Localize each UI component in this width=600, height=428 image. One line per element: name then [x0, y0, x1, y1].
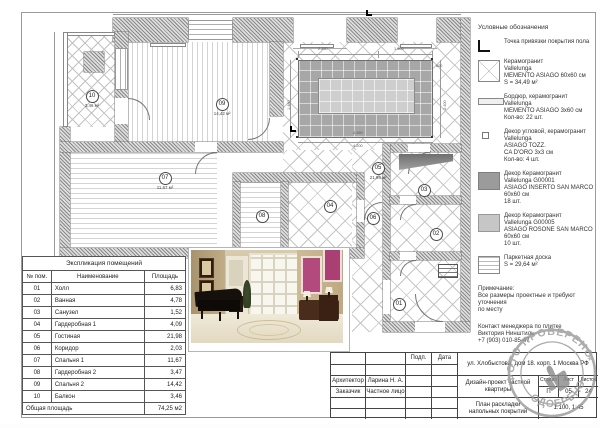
- interior-photo-inset: [188, 247, 350, 352]
- legend-swatch-icon: [478, 214, 500, 232]
- radiator: [150, 43, 186, 47]
- dimension-label: 2.250: [318, 47, 328, 51]
- dimension-label: 1.500: [394, 47, 404, 51]
- dimension-label: 4.200: [353, 144, 363, 148]
- room-name-cell: Ванная: [51, 295, 144, 307]
- photo-lamp-base: [306, 296, 308, 301]
- table-row: 05 Гостиная 21,98: [23, 331, 186, 343]
- legend-icon-cell: [478, 129, 504, 164]
- legend: Условные обозначения Точка привязки покр…: [478, 24, 595, 345]
- wall-segment: [60, 142, 283, 152]
- table-row: 03 Санузел 1,52: [23, 307, 186, 319]
- room-area-cell: 14,42: [144, 379, 185, 391]
- room-name-cell: Спальня 2: [51, 379, 144, 391]
- col-header-name: Наименование: [51, 271, 144, 283]
- legend-title: Условные обозначения: [478, 24, 595, 31]
- podp-header: Подп.: [405, 353, 431, 364]
- door-opening: [400, 196, 416, 204]
- entrance-opening: [415, 322, 445, 332]
- dimension-label: 600: [436, 64, 442, 68]
- room-area-label: 11,67 м²: [157, 185, 174, 190]
- room-num-cell: 01: [23, 283, 52, 295]
- room-number: 07: [159, 172, 172, 185]
- room-bubble: 03: [409, 178, 439, 197]
- photo-lamp-base: [328, 292, 330, 297]
- stage-label: Стадия: [538, 375, 558, 386]
- room-number: 04: [324, 200, 337, 213]
- room-bubble: 08: [247, 204, 277, 223]
- room-bubble: 07 11,67 м²: [150, 166, 180, 194]
- room-bubble: 02: [421, 222, 451, 241]
- window: [188, 20, 233, 40]
- radiator: [300, 44, 334, 48]
- col-header-area: Площадь: [144, 271, 185, 283]
- legend-item: Точка привязки покрытия пола: [478, 39, 595, 52]
- room-name-cell: Гостиная: [51, 331, 144, 343]
- corner-decor-dot: [431, 136, 433, 138]
- photo-magenta-panel: [323, 250, 342, 282]
- photo-plant: [243, 280, 251, 308]
- client-label: Заказчик: [331, 386, 365, 397]
- legend-icon-cell: [478, 94, 504, 122]
- room-number: 06: [367, 212, 380, 225]
- legend-swatch-icon: [478, 98, 504, 105]
- legend-item: Бордюр, керамогранит Vallelunga MEMENTO …: [478, 94, 595, 122]
- address-cell: ул. Хлобыстова, дом 18. корп. 1 Москва Р…: [457, 353, 598, 375]
- radiator: [400, 44, 432, 48]
- sheet-value: 05: [558, 386, 578, 397]
- wall-segment: [233, 18, 293, 42]
- room-name-cell: Балкон: [51, 391, 144, 403]
- room-num-cell: 05: [23, 331, 52, 343]
- room-area-label: 14,42 м²: [214, 111, 231, 116]
- photo-picture-frame: [199, 258, 214, 278]
- corner-decor-dot: [296, 136, 298, 138]
- room-10-balcony-floor: [68, 32, 115, 127]
- sheet-title-cell: План раскладки напольных покрытий: [457, 397, 538, 419]
- dimension-line: [54, 32, 55, 258]
- architect-name: Ларина Н. А.: [365, 375, 405, 386]
- table-row: 01 Холл 6,83: [23, 283, 186, 295]
- table-row: 08 Гардеробная 2 3,47: [23, 367, 186, 379]
- room-name-cell: Гардеробная 1: [51, 319, 144, 331]
- legend-item: Паркетная доска S = 29,64 м²: [478, 255, 595, 274]
- room-area-cell: 11,67: [144, 355, 185, 367]
- floor-anchor-point-icon: [366, 10, 372, 16]
- dimension-line: [440, 60, 441, 138]
- room-area-label: 3,46 м²: [84, 103, 101, 108]
- dimension-tick: [298, 51, 299, 58]
- dimension-label: 2.400: [443, 100, 447, 110]
- date-header: Дата: [431, 353, 457, 364]
- client-name: Частное лицо: [365, 386, 405, 397]
- project-title-cell: Дизайн-проект частной квартиры: [457, 375, 538, 397]
- door-opening: [115, 98, 128, 124]
- room-area-cell: 6,83: [144, 283, 185, 295]
- legend-icon-cell: [478, 171, 504, 206]
- legend-icon-cell: [478, 213, 504, 248]
- window: [115, 48, 128, 90]
- table-row: 10 Балкон 3,46: [23, 391, 186, 403]
- table-row: 09 Спальня 2 14,42: [23, 379, 186, 391]
- legend-item-text: Декор Керамогранит Vallelunga G00005 ASI…: [504, 213, 593, 248]
- photo-piano-leg: [219, 312, 221, 321]
- balcony-rail: [63, 32, 115, 36]
- legend-icon-cell: [478, 39, 504, 52]
- legend-item-text: Точка привязки покрытия пола: [504, 39, 589, 52]
- wall-segment: [233, 182, 240, 252]
- legend-item: Декор угловой, керамогранит Vallelunga A…: [478, 129, 595, 164]
- photo-floor-medallion-inner: [249, 324, 289, 336]
- photo-fireplace-mirror: [229, 260, 243, 286]
- room-07-bedroom1-floor: [70, 150, 217, 248]
- room-number: 03: [418, 184, 431, 197]
- photo-piano-leg: [201, 310, 203, 319]
- dimension-line: [298, 142, 433, 143]
- balcony-column: [84, 52, 104, 72]
- room-name-cell: Холл: [51, 283, 144, 295]
- sheet-label: Лист: [558, 375, 578, 386]
- col-header-num: № пом.: [23, 271, 52, 283]
- photo-window-bay: [249, 253, 301, 319]
- explication-table: Экспликация помещений № пом. Наименовани…: [22, 256, 186, 415]
- legend-swatch-icon: [478, 40, 490, 52]
- room-area-cell: 1,52: [144, 307, 185, 319]
- photo-piano-leg: [237, 310, 239, 319]
- room-number: 05: [372, 162, 385, 175]
- room-area-cell: 3,46: [144, 391, 185, 403]
- dimension-tick: [378, 51, 379, 58]
- photo-cabinet: [319, 295, 338, 321]
- table-title: Экспликация помещений: [23, 257, 186, 271]
- stage-value: П: [538, 386, 558, 397]
- dimension-label: 4.260: [353, 131, 363, 135]
- dimension-tick: [432, 51, 433, 58]
- wall-segment: [347, 18, 397, 42]
- room-num-cell: 03: [23, 307, 52, 319]
- architect-label: Архитектор: [331, 375, 365, 386]
- room-area-cell: 4,09: [144, 319, 185, 331]
- wall-segment: [233, 173, 364, 182]
- legend-item-text: Керамогранит Vallelunga MEMENTO ASIAGO 6…: [504, 59, 586, 87]
- room-num-cell: 09: [23, 379, 52, 391]
- wall-segment: [461, 18, 470, 332]
- table-row: 06 Коридор 2,03: [23, 343, 186, 355]
- table-row: 02 Ванная 4,78: [23, 295, 186, 307]
- room-area-cell: 3,47: [144, 367, 185, 379]
- scale-cell: 1:100, 1:45: [538, 397, 598, 419]
- drawing-sheet: 10 3,46 м² 09 14,42 м² 05 21,98 м² 07 11…: [0, 0, 600, 424]
- room-number: 02: [430, 228, 443, 241]
- legend-swatch-icon: [478, 172, 500, 190]
- sheets-label: Листов: [578, 375, 598, 386]
- legend-note: Примечание: Все размеры проектные и треб…: [478, 286, 595, 314]
- photo-piano-body: [198, 300, 240, 311]
- door-opening: [195, 142, 217, 152]
- interior-photo: [191, 250, 343, 343]
- room-bubble: 05 21,98 м²: [363, 156, 393, 184]
- room-bubble: 10 3,46 м²: [77, 84, 107, 112]
- sheets-value: 24: [578, 386, 598, 397]
- room-bubble: 04: [315, 194, 345, 213]
- room-number: 01: [393, 298, 406, 311]
- photo-magenta-panel: [301, 256, 322, 294]
- floor-anchor-point-icon: [290, 126, 296, 132]
- room-num-cell: 07: [23, 355, 52, 367]
- legend-item-text: Декор Керамогранит Vallelunga G00001 ASI…: [504, 171, 593, 206]
- room-bubble: 09 14,42 м²: [207, 92, 237, 120]
- wall-segment: [270, 42, 283, 116]
- table-row: 07 Спальня 1 11,67: [23, 355, 186, 367]
- room-num-cell: 04: [23, 319, 52, 331]
- title-block: Подп. Дата ул. Хлобыстова, дом 18. корп.…: [330, 352, 597, 418]
- room-area-cell: 4,78: [144, 295, 185, 307]
- legend-swatch-icon: [482, 132, 489, 139]
- hall-cabinet: [438, 264, 458, 278]
- room-name-cell: Спальня 1: [51, 355, 144, 367]
- legend-item-text: Паркетная доска S = 29,64 м²: [504, 255, 551, 274]
- legend-swatch-icon: [478, 256, 500, 274]
- room-area-cell: 2,03: [144, 343, 185, 355]
- tile-inlay-inner: [318, 78, 415, 114]
- room-num-cell: 06: [23, 343, 52, 355]
- legend-item: Декор Керамогранит Vallelunga G00005 ASI…: [478, 213, 595, 248]
- room-bubble: 01: [384, 292, 414, 311]
- table-row: 04 Гардеробная 1 4,09: [23, 319, 186, 331]
- legend-item: Декор Керамогранит Vallelunga G00001 ASI…: [478, 171, 595, 206]
- legend-contact: Контакт менеджера по плитке Виктория Нин…: [478, 324, 595, 345]
- room-number: 10: [86, 90, 99, 103]
- room-bubble: 06: [358, 206, 388, 225]
- legend-icon-cell: [478, 255, 504, 274]
- dimension-line: [113, 14, 461, 15]
- balcony-rail: [63, 32, 68, 127]
- room-name-cell: Санузел: [51, 307, 144, 319]
- legend-item-text: Бордюр, керамогранит Vallelunga MEMENTO …: [504, 94, 582, 122]
- room-name-cell: Гардеробная 2: [51, 367, 144, 379]
- corner-decor-dot: [431, 58, 433, 60]
- room-num-cell: 08: [23, 367, 52, 379]
- room-num-cell: 10: [23, 391, 52, 403]
- room-number: 08: [256, 210, 269, 223]
- room-num-cell: 02: [23, 295, 52, 307]
- dimension-line: [298, 54, 433, 55]
- door-opening: [408, 144, 430, 152]
- wall-segment: [281, 182, 288, 252]
- room-number: 09: [216, 98, 229, 111]
- legend-swatch-icon: [478, 60, 500, 82]
- total-label: Общая площадь: [23, 403, 145, 415]
- room-area-cell: 21,98: [144, 331, 185, 343]
- room-name-cell: Коридор: [51, 343, 144, 355]
- legend-item-text: Декор угловой, керамогранит Vallelunga A…: [504, 129, 586, 164]
- door-opening: [400, 252, 416, 260]
- legend-icon-cell: [478, 59, 504, 87]
- total-value: 74,25 м2: [144, 403, 185, 415]
- room-area-label: 21,98 м²: [370, 175, 387, 180]
- corner-decor-dot: [296, 58, 298, 60]
- dimension-label: 1.480: [287, 100, 291, 110]
- legend-item: Керамогранит Vallelunga MEMENTO ASIAGO 6…: [478, 59, 595, 87]
